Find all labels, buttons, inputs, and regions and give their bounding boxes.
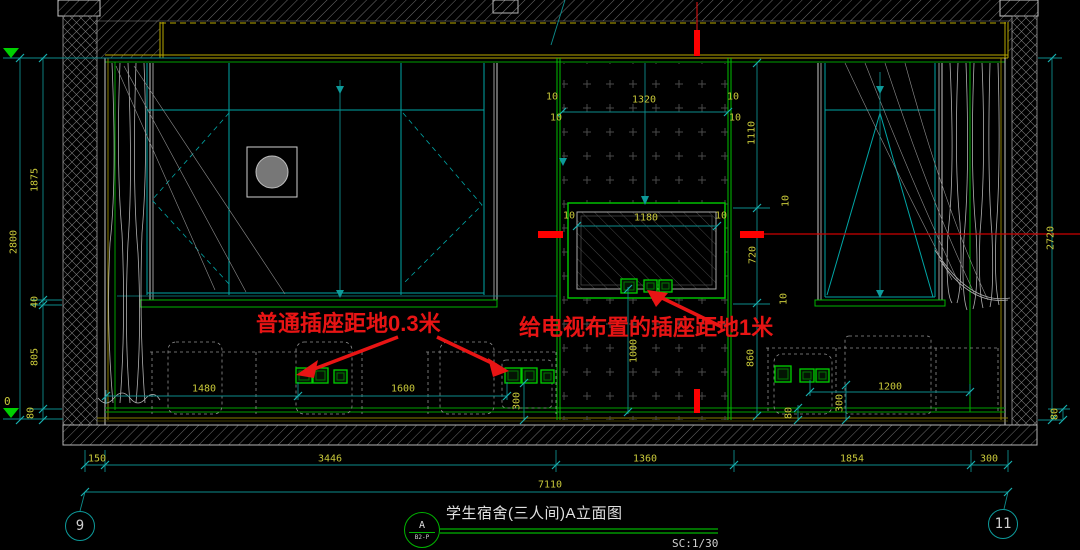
cad-canvas: 2800187540805802720808013201010101011101…	[0, 0, 1080, 548]
wall-columns	[63, 16, 1037, 425]
detail-ref: B2-P	[409, 532, 436, 541]
grid-bubble-left-label: 9	[76, 518, 84, 534]
elevation-markers	[3, 48, 19, 418]
ceiling-slab-hatch	[58, 0, 1038, 58]
grid-bubble-right: 11	[988, 509, 1018, 539]
floor	[63, 408, 1037, 445]
socket-group-mid	[505, 368, 554, 383]
title-underline	[440, 529, 718, 533]
annotation-note-left: 普通插座距地0.3米	[256, 306, 441, 338]
left-window	[117, 63, 557, 307]
detail-letter: A	[419, 520, 425, 532]
elevation-zero-label: 0	[4, 395, 11, 408]
grid-bubble-right-label: 11	[995, 516, 1012, 532]
drawing-linework	[0, 0, 1080, 548]
drawing-title: 学生宿舍(三人间)A立面图	[446, 502, 623, 523]
detail-marker: A B2-P	[404, 512, 440, 548]
wall-clock	[247, 147, 297, 197]
wall-finishes	[105, 58, 1005, 425]
grid-bubble-left: 9	[65, 511, 95, 541]
annotation-note-right: 给电视布置的插座距地1米	[519, 310, 773, 342]
socket-group-right	[775, 366, 829, 382]
socket-group-tv	[621, 279, 672, 293]
drawing-scale: SC:1/30	[672, 537, 718, 550]
